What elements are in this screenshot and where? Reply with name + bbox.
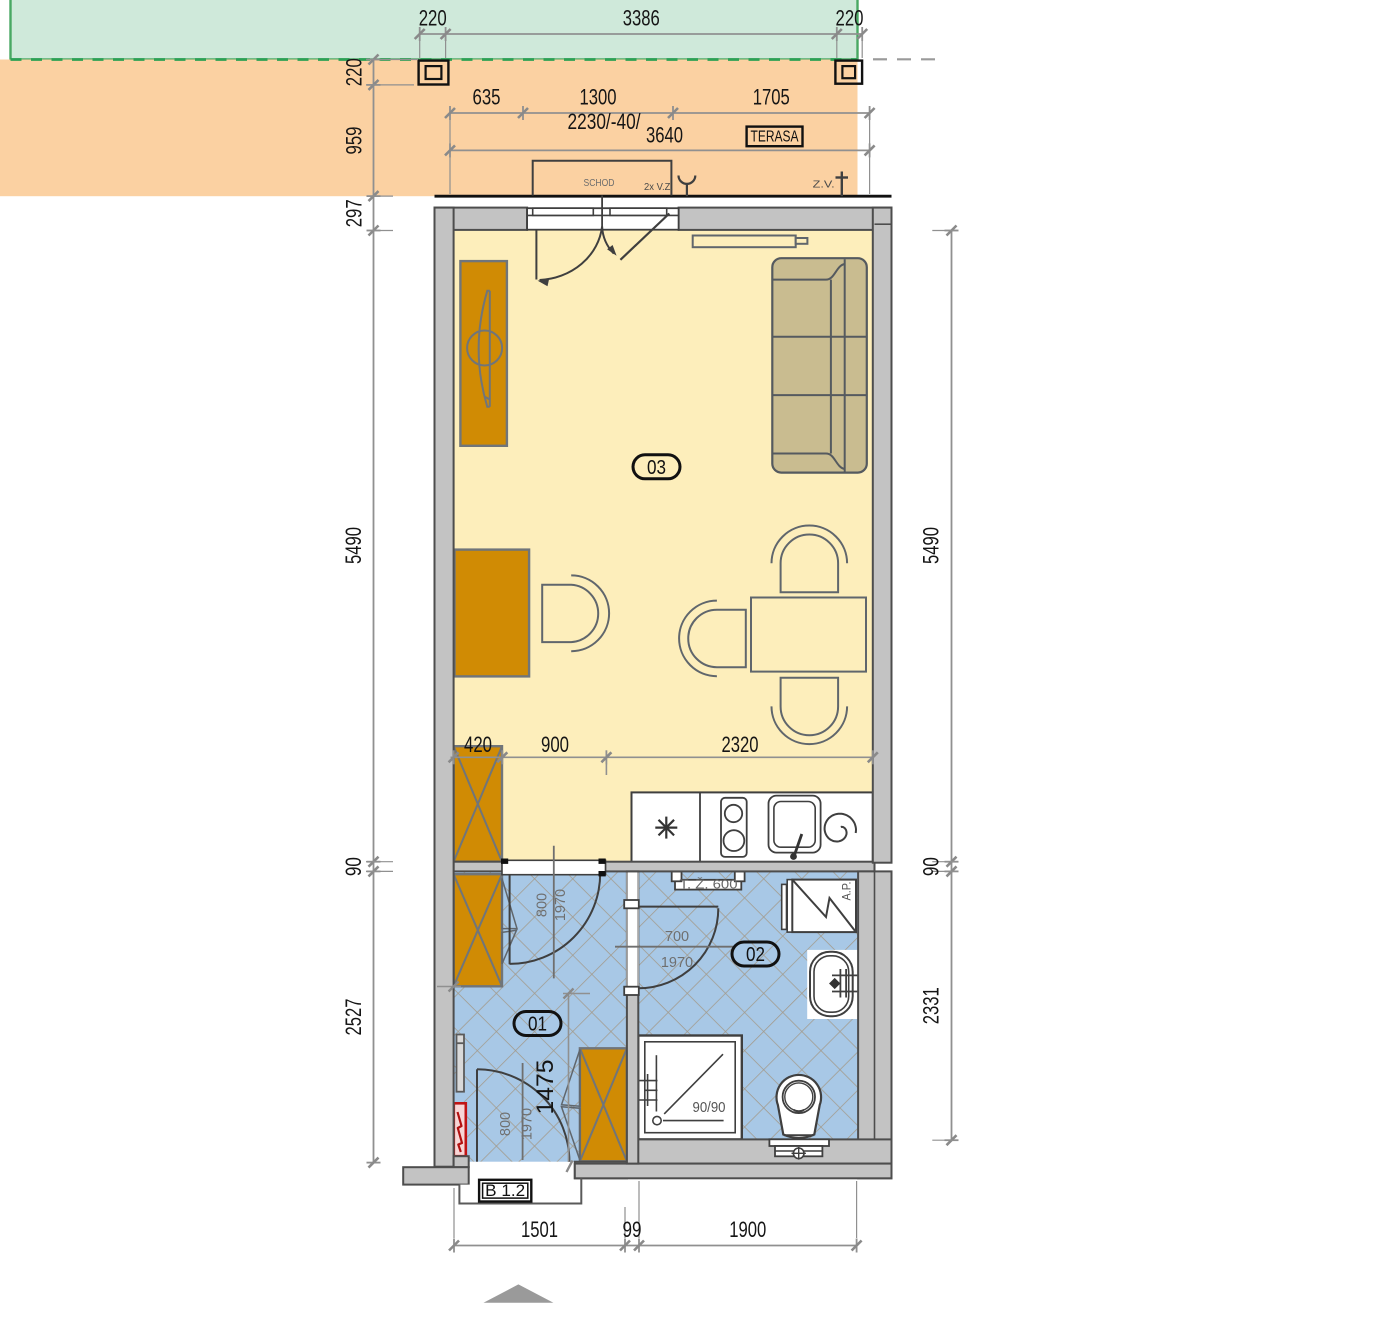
svg-text:A.P.: A.P. bbox=[842, 882, 854, 901]
svg-text:T. Ž. 600: T. Ž. 600 bbox=[680, 877, 738, 892]
svg-text:2230/-40/: 2230/-40/ bbox=[568, 109, 642, 134]
svg-text:90: 90 bbox=[341, 857, 366, 876]
svg-text:B 1.2: B 1.2 bbox=[485, 1182, 525, 1200]
svg-text:800: 800 bbox=[535, 893, 551, 917]
svg-text:635: 635 bbox=[473, 85, 501, 110]
svg-text:220: 220 bbox=[342, 58, 367, 86]
svg-text:TERASA: TERASA bbox=[751, 129, 800, 146]
svg-text:2527: 2527 bbox=[341, 999, 366, 1036]
svg-text:800: 800 bbox=[498, 1112, 514, 1136]
svg-text:2331: 2331 bbox=[919, 987, 944, 1024]
svg-text:297: 297 bbox=[342, 199, 367, 227]
svg-text:3386: 3386 bbox=[623, 6, 660, 31]
svg-text:2x V.Z.: 2x V.Z. bbox=[644, 181, 673, 193]
svg-text:1475: 1475 bbox=[532, 1060, 559, 1115]
svg-text:3640: 3640 bbox=[646, 123, 683, 148]
svg-text:220: 220 bbox=[419, 6, 447, 31]
svg-text:1501: 1501 bbox=[521, 1217, 558, 1242]
svg-text:959: 959 bbox=[342, 127, 367, 155]
svg-text:700: 700 bbox=[665, 929, 689, 945]
svg-text:1705: 1705 bbox=[753, 85, 790, 110]
svg-text:1300: 1300 bbox=[580, 85, 617, 110]
svg-text:SCHOD: SCHOD bbox=[584, 178, 615, 189]
svg-text:03: 03 bbox=[647, 457, 666, 479]
svg-text:900: 900 bbox=[541, 732, 569, 757]
svg-text:2320: 2320 bbox=[722, 732, 759, 757]
svg-text:99: 99 bbox=[623, 1217, 642, 1242]
svg-text:420: 420 bbox=[464, 732, 492, 757]
svg-text:1970: 1970 bbox=[661, 955, 693, 971]
svg-text:5490: 5490 bbox=[919, 527, 944, 564]
svg-text:220: 220 bbox=[836, 6, 864, 31]
svg-text:02: 02 bbox=[746, 944, 765, 966]
svg-text:90/90: 90/90 bbox=[693, 1099, 726, 1116]
svg-text:Z.V.: Z.V. bbox=[813, 179, 835, 191]
svg-text:1900: 1900 bbox=[729, 1217, 766, 1242]
svg-text:90: 90 bbox=[919, 857, 944, 876]
svg-text:5490: 5490 bbox=[341, 527, 366, 564]
svg-text:01: 01 bbox=[528, 1014, 547, 1036]
svg-text:1970: 1970 bbox=[553, 889, 569, 921]
